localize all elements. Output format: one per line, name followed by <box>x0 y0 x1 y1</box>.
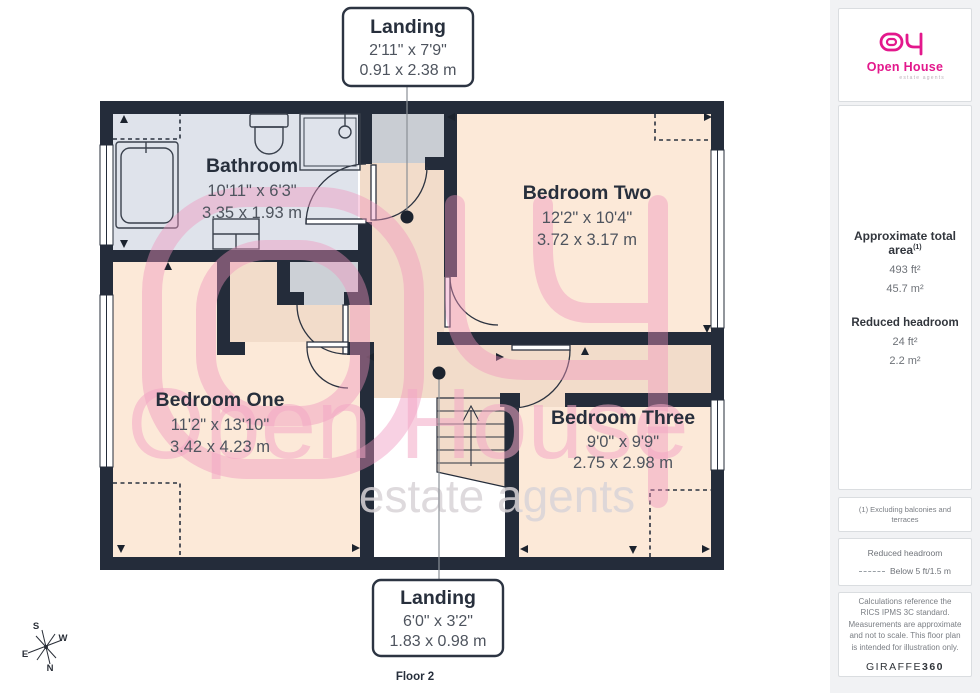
headroom-title: Reduced headroom <box>851 317 958 329</box>
svg-text:2.75 x 2.98 m: 2.75 x 2.98 m <box>573 454 673 472</box>
compass: S W E N <box>22 621 68 674</box>
footnote-card: (1) Excluding balconies and terraces <box>838 497 972 532</box>
logo-wordmark: Open House <box>867 60 944 74</box>
headroom-ft-value: 24 ft² <box>892 336 917 348</box>
logo-tagline: estate agents <box>899 75 945 81</box>
svg-text:2'11" x 7'9": 2'11" x 7'9" <box>369 42 447 59</box>
bedroom-two-window <box>711 150 724 328</box>
landing-top-floor <box>372 114 444 163</box>
svg-text:Bedroom Three: Bedroom Three <box>551 407 695 429</box>
legend-card: Reduced headroom Below 5 ft/1.5 m <box>838 538 972 586</box>
legend-title: Reduced headroom <box>868 548 943 558</box>
svg-text:Bedroom Two: Bedroom Two <box>523 182 652 204</box>
giraffe360-name: GIRAFFE <box>866 661 922 673</box>
bedroom-two-label: Bedroom Two 12'2" x 10'4" 3.72 x 3.17 m <box>523 182 652 249</box>
compass-south: S <box>33 621 39 632</box>
svg-text:0.91 x 2.38 m: 0.91 x 2.38 m <box>360 62 457 79</box>
bedroom-one-window <box>100 295 113 467</box>
callout-landing-bottom: Landing 6'0" x 3'2" 1.83 x 0.98 m <box>373 580 503 656</box>
legend-item: Below 5 ft/1.5 m <box>890 566 951 576</box>
callout-landing-top: Landing 2'11" x 7'9" 0.91 x 2.38 m <box>343 8 473 86</box>
svg-text:10'11" x 6'3": 10'11" x 6'3" <box>207 182 296 200</box>
svg-text:Landing: Landing <box>400 587 476 609</box>
dashed-line-icon <box>859 571 885 572</box>
floor-label: Floor 2 <box>396 671 434 683</box>
area-ft-value: 493 ft² <box>889 264 920 276</box>
floor-plan-svg: Open House estate agents Bathroom 10'11"… <box>0 0 830 693</box>
bedroom-three-window <box>711 400 724 470</box>
svg-text:3.35 x 1.93 m: 3.35 x 1.93 m <box>202 204 302 222</box>
svg-text:3.72 x 3.17 m: 3.72 x 3.17 m <box>537 231 637 249</box>
svg-text:Bedroom One: Bedroom One <box>156 389 285 411</box>
svg-text:12'2" x 10'4": 12'2" x 10'4" <box>542 209 633 227</box>
leader-dot-bottom <box>433 367 446 380</box>
compass-north: N <box>47 663 54 674</box>
svg-text:Landing: Landing <box>370 16 446 38</box>
bathroom-window <box>100 145 113 245</box>
area-title: Approximate total area(1) <box>839 229 971 257</box>
logo-card: Open House estate agents <box>838 8 972 102</box>
area-footnote-marker: (1) <box>913 244 922 251</box>
area-m-value: 45.7 m² <box>886 283 923 295</box>
compass-east: E <box>22 649 28 660</box>
area-title-text: Approximate total area <box>854 229 956 257</box>
giraffe360-brand: GIRAFFE360 <box>866 661 944 673</box>
floorplan-page: Open House estate agents Bathroom 10'11"… <box>0 0 980 693</box>
open-house-logo-icon <box>879 29 931 57</box>
giraffe360-suffix: 360 <box>922 661 944 673</box>
footnote-text: (1) Excluding balconies and terraces <box>845 505 965 525</box>
svg-text:1.83 x 0.98 m: 1.83 x 0.98 m <box>390 633 487 650</box>
svg-text:Bathroom: Bathroom <box>206 155 298 177</box>
svg-text:11'2" x 13'10": 11'2" x 13'10" <box>171 416 270 434</box>
info-sidebar: Open House estate agents Approximate tot… <box>830 0 980 693</box>
svg-text:9'0" x 9'9": 9'0" x 9'9" <box>587 433 659 451</box>
leader-dot-top <box>401 211 414 224</box>
svg-text:3.42 x 4.23 m: 3.42 x 4.23 m <box>170 438 270 456</box>
bedroom-one-label: Bedroom One 11'2" x 13'10" 3.42 x 4.23 m <box>156 389 285 456</box>
bathroom-label: Bathroom 10'11" x 6'3" 3.35 x 1.93 m <box>202 155 302 222</box>
compass-west: W <box>59 633 68 644</box>
watermark-tagline-text: estate agents <box>359 470 635 522</box>
headroom-m-value: 2.2 m² <box>889 355 920 367</box>
area-summary-card: Approximate total area(1) 493 ft² 45.7 m… <box>838 105 972 490</box>
disclaimer-card: Calculations reference the RICS IPMS 3C … <box>838 592 972 677</box>
disclaimer-text: Calculations reference the RICS IPMS 3C … <box>848 596 962 654</box>
svg-text:6'0" x 3'2": 6'0" x 3'2" <box>403 613 473 630</box>
